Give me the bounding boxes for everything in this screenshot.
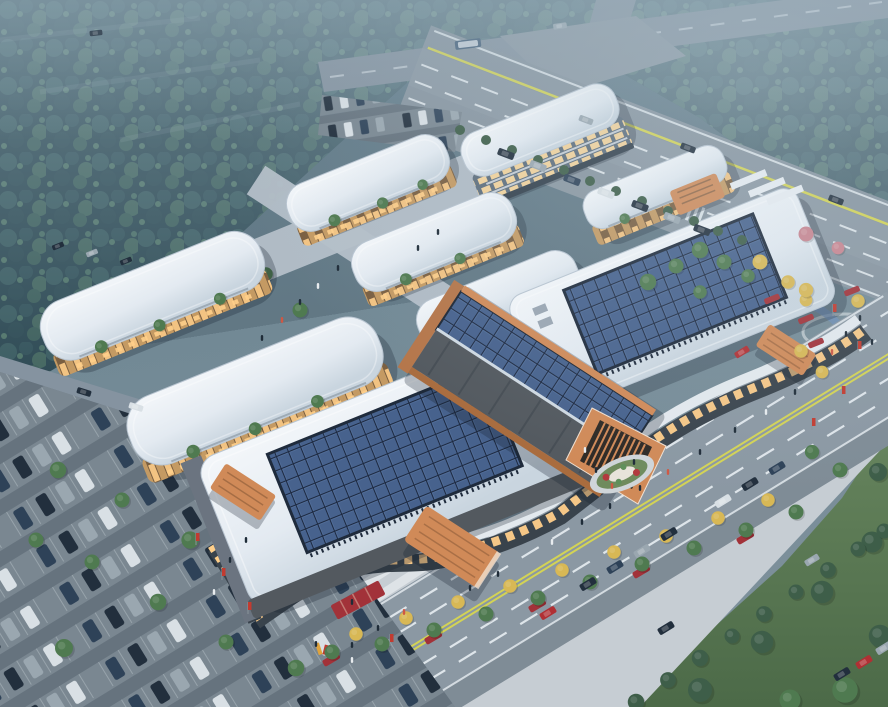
distance-haze — [0, 0, 888, 140]
rendering-canvas — [0, 0, 888, 707]
aerial-site-rendering — [0, 0, 888, 707]
